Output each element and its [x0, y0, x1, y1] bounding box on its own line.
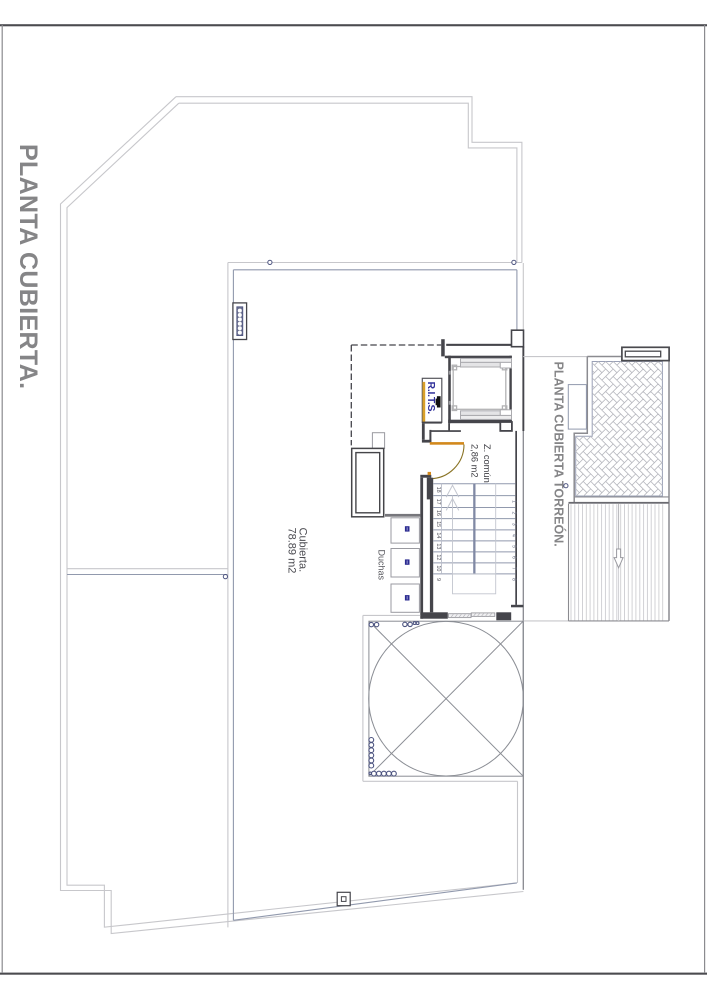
svg-text:17: 17	[435, 499, 441, 505]
svg-text:78.89 m2: 78.89 m2	[286, 528, 298, 574]
svg-text:6: 6	[511, 556, 517, 559]
svg-text:12: 12	[435, 554, 441, 560]
svg-text:9: 9	[435, 578, 441, 581]
svg-text:14: 14	[435, 532, 441, 538]
svg-text:3: 3	[511, 523, 517, 526]
svg-text:4: 4	[511, 534, 517, 537]
svg-text:15: 15	[435, 521, 441, 527]
svg-text:PLANTA CUBIERTA.: PLANTA CUBIERTA.	[14, 144, 42, 389]
svg-text:10: 10	[435, 565, 441, 571]
svg-text:16: 16	[435, 510, 441, 516]
svg-text:2: 2	[511, 512, 517, 515]
svg-text:8: 8	[511, 578, 517, 581]
svg-text:R.I.T.S.: R.I.T.S.	[425, 382, 437, 415]
svg-text:Duchas: Duchas	[377, 550, 387, 581]
svg-text:5: 5	[511, 545, 517, 548]
svg-text:2,86 m2: 2,86 m2	[470, 444, 480, 478]
svg-text:1: 1	[511, 500, 517, 503]
svg-text:13: 13	[435, 543, 441, 549]
svg-text:Cubierta.: Cubierta.	[297, 528, 309, 573]
svg-text:PLANTA CUBIERTA TORREÓN.: PLANTA CUBIERTA TORREÓN.	[552, 362, 567, 547]
svg-text:7: 7	[511, 567, 517, 570]
svg-text:Z. común: Z. común	[482, 444, 492, 483]
svg-text:18: 18	[435, 487, 441, 493]
